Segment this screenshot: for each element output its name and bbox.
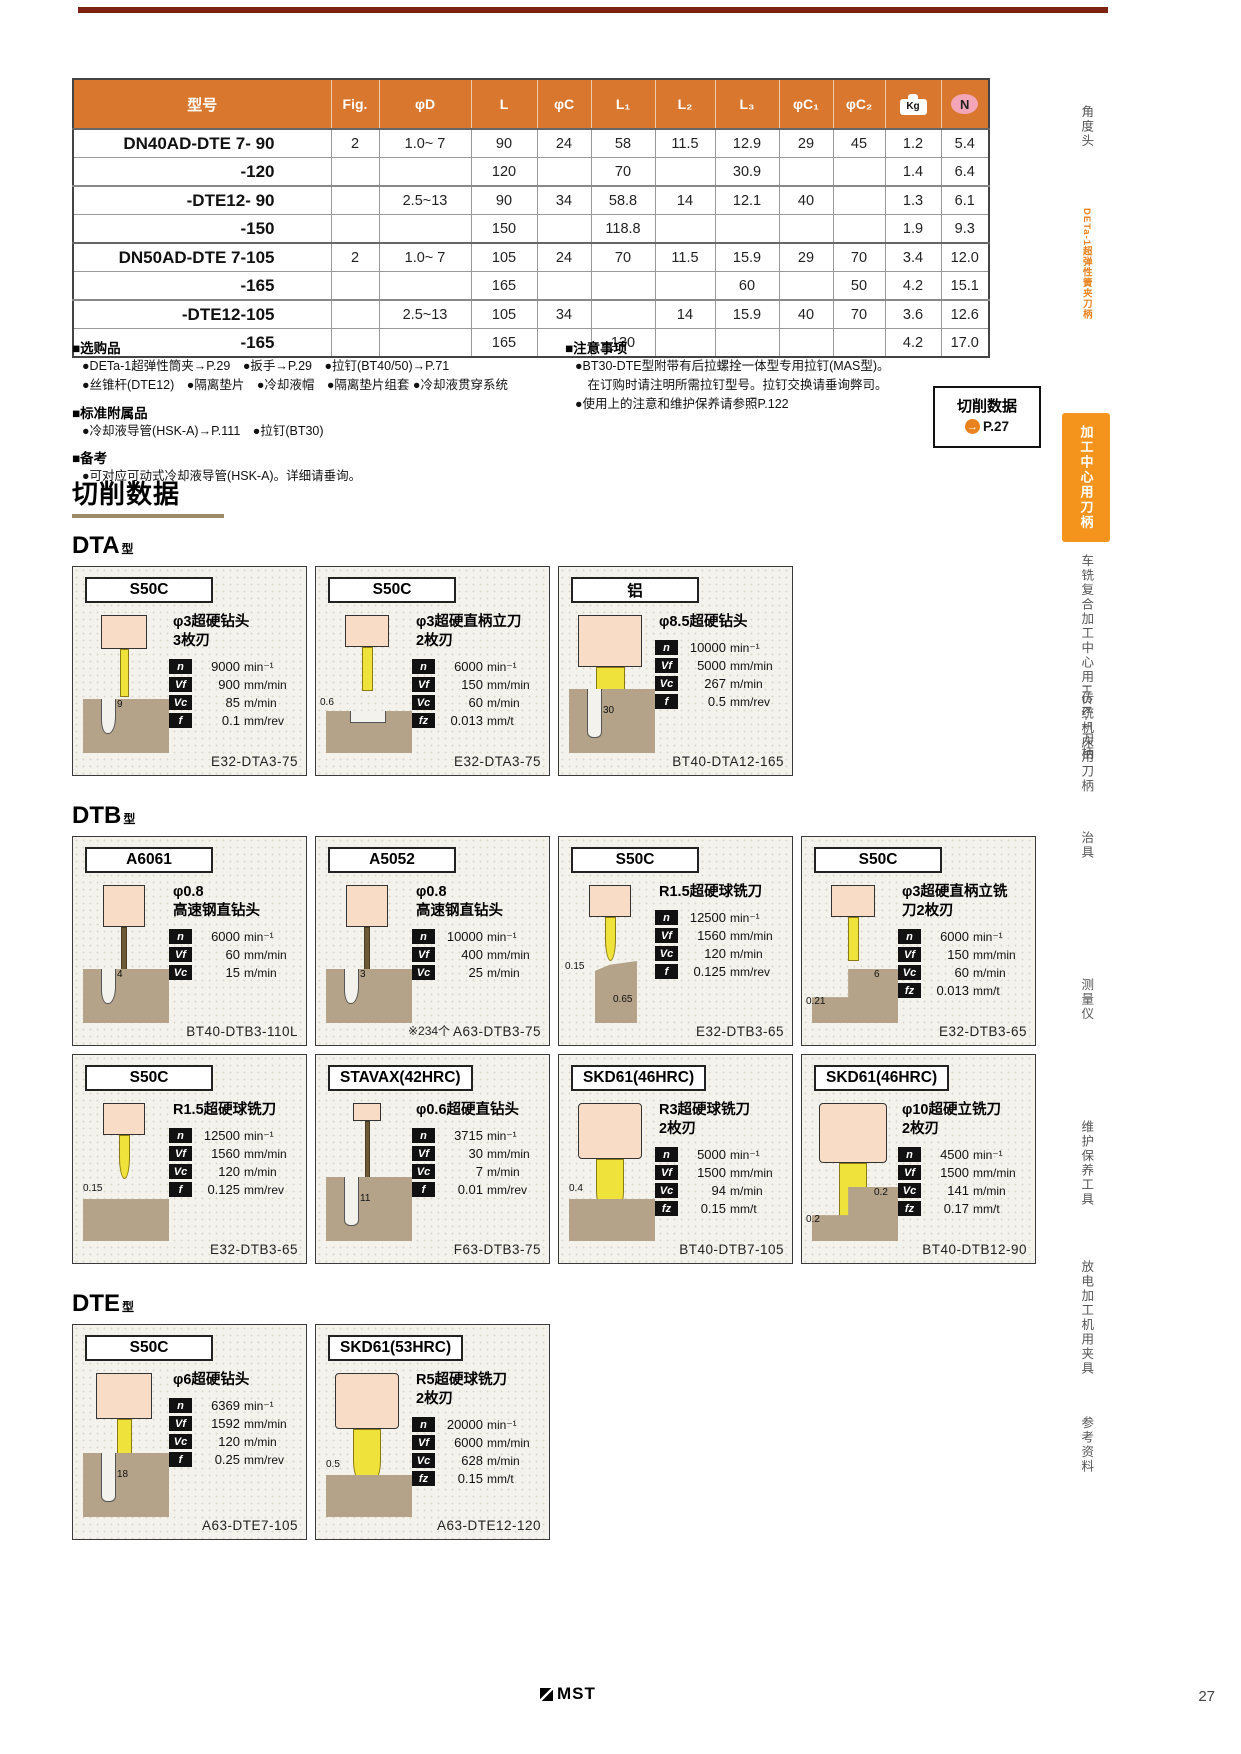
cut-diagram: 18 [79, 1447, 185, 1517]
spec-row: -DTE12- 90 2.5~13903458.81412.1401.36.1 [73, 186, 989, 215]
hole-shape [350, 711, 386, 723]
cutting-data-card: S50C φ6超硬钻头 n 6369 min⁻¹ Vf 1592 mm/min … [72, 1324, 307, 1540]
sidebar-tab[interactable]: 参考资料 [1062, 1416, 1110, 1474]
tool-description: φ0.8高速钢直钻头 [416, 883, 546, 921]
param-unit: min⁻¹ [244, 660, 274, 674]
cut-diagram: 0.15 [79, 1171, 185, 1241]
material-label: STAVAX(42HRC) [328, 1065, 473, 1091]
param-unit: mm/t [973, 984, 1000, 998]
sidebar-tab[interactable]: 维护保养工具 [1062, 1120, 1110, 1207]
param-value: 60 [196, 947, 240, 962]
cutting-data-reference[interactable]: 切削数据 → P.27 [933, 386, 1041, 448]
spec-cell [779, 215, 833, 244]
param-row: Vf 1500 mm/min [898, 1165, 1034, 1180]
param-unit: mm/min [487, 948, 530, 962]
spec-cell: 15.1 [941, 272, 989, 301]
collet-holder-shape [578, 615, 642, 667]
spec-cell: 58.8 [591, 186, 655, 215]
param-unit: m/min [244, 1435, 277, 1449]
param-unit: min⁻¹ [487, 1129, 517, 1143]
collet-holder-shape [101, 615, 147, 649]
param-value: 267 [682, 676, 726, 691]
param-unit: min⁻¹ [244, 1129, 274, 1143]
spec-cell [331, 158, 379, 187]
spec-cell: 12.6 [941, 300, 989, 329]
dimension-label: 3 [360, 969, 366, 980]
cutting-params: n 6369 min⁻¹ Vf 1592 mm/min Vc 120 m/min… [169, 1398, 305, 1470]
dimension-label: 6 [874, 969, 880, 980]
param-row: n 10000 min⁻¹ [655, 640, 791, 655]
param-value: 0.1 [196, 713, 240, 728]
spec-cell: 24 [537, 129, 591, 158]
param-value: 400 [439, 947, 483, 962]
note-title: ■标准附属品 [72, 402, 560, 422]
param-unit: mm/min [730, 929, 773, 943]
spec-cell [537, 215, 591, 244]
param-unit: mm/min [244, 1147, 287, 1161]
param-unit: m/min [244, 966, 277, 980]
cutting-params: n 10000 min⁻¹ Vf 400 mm/min Vc 25 m/min [412, 929, 548, 983]
spec-cell [331, 215, 379, 244]
cutting-data-card: A5052 φ0.8高速钢直钻头 n 10000 min⁻¹ Vf 400 mm… [315, 836, 550, 1046]
collet-holder-shape [103, 1103, 145, 1135]
mst-logo-icon [540, 1688, 553, 1701]
tool-illustration [91, 1103, 157, 1179]
spec-cell: 34 [537, 300, 591, 329]
param-unit: min⁻¹ [487, 1418, 517, 1432]
arrow-icon: → [965, 419, 980, 434]
cutting-params: n 4500 min⁻¹ Vf 1500 mm/min Vc 141 m/min… [898, 1147, 1034, 1219]
param-symbol-chip: n [412, 659, 435, 674]
param-unit: mm/min [487, 1436, 530, 1450]
cutting-params: n 20000 min⁻¹ Vf 6000 mm/min Vc 628 m/mi… [412, 1417, 548, 1489]
cutting-data-card: STAVAX(42HRC) φ0.6超硬直钻头 n 3715 min⁻¹ Vf … [315, 1054, 550, 1264]
param-value: 1592 [196, 1416, 240, 1431]
dimension-label: 0.5 [326, 1459, 340, 1470]
param-row: fz 0.15 mm/t [412, 1471, 548, 1486]
page-number: 27 [1198, 1688, 1215, 1705]
spec-cell: 29 [779, 243, 833, 272]
collet-holder-shape [346, 885, 388, 927]
spec-cell: 12.9 [715, 129, 779, 158]
spec-cell: 165 [471, 272, 537, 301]
param-value: 120 [196, 1434, 240, 1449]
param-row: Vf 400 mm/min [412, 947, 548, 962]
param-row: Vf 5000 mm/min [655, 658, 791, 673]
param-value: 15 [196, 965, 240, 980]
param-row: n 12500 min⁻¹ [655, 910, 791, 925]
sidebar-tab-label: 维护保养工具 [1080, 1120, 1093, 1207]
param-row: Vc 267 m/min [655, 676, 791, 691]
workpiece-shape [83, 969, 169, 1023]
param-row: f 0.5 mm/rev [655, 694, 791, 709]
param-value: 10000 [682, 640, 726, 655]
param-unit: mm/rev [730, 695, 770, 709]
param-value: 120 [196, 1164, 240, 1179]
tool-description: φ6超硬钻头 [173, 1371, 303, 1390]
note-line: ●BT30-DTE型附带有后拉螺拴一体型专用拉钉(MAS型)。 [565, 357, 1015, 376]
spec-cell [591, 300, 655, 329]
param-row: f 0.25 mm/rev [169, 1452, 305, 1467]
dimension-label: 30 [603, 705, 614, 716]
param-row: n 4500 min⁻¹ [898, 1147, 1034, 1162]
param-unit: min⁻¹ [487, 930, 517, 944]
cut-diagram: 6 0.21 [808, 953, 914, 1023]
param-unit: m/min [730, 947, 763, 961]
spec-cell: 5.4 [941, 129, 989, 158]
group-suffix: 型 [122, 542, 134, 556]
param-unit: mm/min [973, 948, 1016, 962]
dimension-label: 9 [117, 699, 123, 710]
param-value: 12500 [196, 1128, 240, 1143]
column-header-l1: L₁ [591, 79, 655, 129]
param-row: f 0.1 mm/rev [169, 713, 305, 728]
material-label: SKD61(46HRC) [571, 1065, 706, 1091]
spec-cell: 6.1 [941, 186, 989, 215]
param-unit: min⁻¹ [973, 1148, 1003, 1162]
holder-model-number: A63-DTB3-75 [453, 1024, 541, 1039]
param-row: fz 0.15 mm/t [655, 1201, 791, 1216]
workpiece-shape [326, 1475, 412, 1517]
spec-cell: 1.4 [885, 158, 941, 187]
param-row: Vc 60 m/min [412, 695, 548, 710]
tool-illustration [820, 885, 886, 961]
spec-cell: 40 [779, 186, 833, 215]
tool-description: φ0.8高速钢直钻头 [173, 883, 303, 921]
param-unit: mm/min [487, 678, 530, 692]
spec-cell: 120 [471, 158, 537, 187]
cutting-group: DTA型 S50C φ3超硬钻头3枚刃 n 9000 min⁻¹ Vf 900 … [72, 532, 1052, 776]
param-symbol-chip: n [412, 1417, 435, 1432]
spec-cell: 2 [331, 243, 379, 272]
spec-row: -120 1207030.91.46.4 [73, 158, 989, 187]
param-value: 5000 [682, 658, 726, 673]
cut-diagram: 0.6 [322, 683, 428, 753]
model-cell: -DTE12-105 [73, 300, 331, 329]
spec-cell: 29 [779, 129, 833, 158]
section-title-underline [72, 514, 224, 518]
workpiece-shape [326, 711, 412, 753]
column-header-l3: L₃ [715, 79, 779, 129]
dimension-label: 0.15 [565, 961, 584, 972]
cut-diagram: 0.15 0.65 [565, 953, 671, 1023]
weight-icon [908, 94, 918, 99]
param-row: Vc 15 m/min [169, 965, 305, 980]
cutting-data-card: SKD61(53HRC) R5超硬球铣刀2枚刃 n 20000 min⁻¹ Vf… [315, 1324, 550, 1540]
param-value: 94 [682, 1183, 726, 1198]
cutting-params: n 10000 min⁻¹ Vf 5000 mm/min Vc 267 m/mi… [655, 640, 791, 712]
param-row: n 12500 min⁻¹ [169, 1128, 305, 1143]
group-suffix: 型 [123, 812, 135, 826]
cut-diagram: 9 [79, 683, 185, 753]
param-symbol-chip: Vf [655, 928, 678, 943]
param-value: 9000 [196, 659, 240, 674]
param-symbol-chip: n [655, 910, 678, 925]
model-cell: -165 [73, 272, 331, 301]
spec-cell: 70 [833, 243, 885, 272]
param-symbol-chip: n [412, 1128, 435, 1143]
holder-model-number: E32-DTA3-75 [454, 754, 541, 769]
column-header-fig: Fig. [331, 79, 379, 129]
sidebar-tab-label: 治具 [1080, 831, 1093, 860]
cutting-params: n 6000 min⁻¹ Vf 150 mm/min Vc 60 m/min f… [898, 929, 1034, 1001]
sidebar-tab[interactable]: 放电加工机用夹具 [1062, 1260, 1110, 1376]
cutting-data-card: S50C φ3超硬直柄立刀2枚刃 n 6000 min⁻¹ Vf 150 mm/… [315, 566, 550, 776]
param-value: 25 [439, 965, 483, 980]
note-block: ■选购品 ●DETa-1超弹性筒夹→P.29 ●扳手→P.29 ●拉钉(BT40… [72, 337, 560, 395]
spec-cell: 11.5 [655, 243, 715, 272]
sidebar-tab-label: 参考资料 [1080, 1416, 1093, 1474]
spec-cell [655, 272, 715, 301]
param-unit: min⁻¹ [973, 930, 1003, 944]
param-unit: min⁻¹ [244, 1399, 274, 1413]
spec-cell: 12.1 [715, 186, 779, 215]
param-value: 6369 [196, 1398, 240, 1413]
spec-cell [331, 272, 379, 301]
param-row: Vc 60 m/min [898, 965, 1034, 980]
dimension-label: 11 [360, 1193, 370, 1204]
param-row: Vf 60 mm/min [169, 947, 305, 962]
spec-cell: 15.9 [715, 243, 779, 272]
cards-row: S50C R1.5超硬球铣刀 n 12500 min⁻¹ Vf 1560 mm/… [72, 1054, 1052, 1264]
param-unit: min⁻¹ [730, 1148, 760, 1162]
spec-cell [833, 186, 885, 215]
dimension-label: 0.6 [320, 697, 334, 708]
param-value: 5000 [682, 1147, 726, 1162]
workpiece-shape [83, 1199, 169, 1241]
tool-description: φ3超硬直柄立刀2枚刃 [416, 613, 546, 651]
param-value: 0.013 [439, 713, 483, 728]
param-row: fz 0.013 mm/t [412, 713, 548, 728]
top-rule [78, 7, 1108, 13]
param-unit: m/min [487, 966, 520, 980]
param-value: 4500 [925, 1147, 969, 1162]
spec-cell: 1.9 [885, 215, 941, 244]
model-cell: -DTE12- 90 [73, 186, 331, 215]
spec-cell: 30.9 [715, 158, 779, 187]
param-value: 1500 [682, 1165, 726, 1180]
spec-cell: 2 [331, 129, 379, 158]
collet-holder-shape [589, 885, 631, 917]
param-unit: mm/t [487, 1472, 514, 1486]
param-value: 20000 [439, 1417, 483, 1432]
param-row: Vc 120 m/min [169, 1434, 305, 1449]
param-value: 60 [439, 695, 483, 710]
group-title: DTE型 [72, 1290, 1052, 1318]
param-value: 1560 [682, 928, 726, 943]
spec-table: 型号 Fig. φD L φC L₁ L₂ L₃ φC₁ φC₂ Kg N DN [72, 78, 988, 358]
cutting-data-card: S50C R1.5超硬球铣刀 n 12500 min⁻¹ Vf 1560 mm/… [558, 836, 793, 1046]
param-value: 12500 [682, 910, 726, 925]
spec-cell [331, 300, 379, 329]
spec-cell: 70 [591, 158, 655, 187]
param-row: fz 0.013 mm/t [898, 983, 1034, 998]
note-lines: ●冷却液导管(HSK-A)→P.111 ●拉钉(BT30) [72, 422, 560, 441]
param-row: n 6369 min⁻¹ [169, 1398, 305, 1413]
spec-cell: 40 [779, 300, 833, 329]
param-unit: m/min [487, 696, 520, 710]
param-row: n 3715 min⁻¹ [412, 1128, 548, 1143]
note-title: ■选购品 [72, 337, 560, 357]
param-unit: mm/min [730, 659, 773, 673]
param-symbol-chip: n [169, 1128, 192, 1143]
sidebar-tab[interactable]: 测量仪 [1062, 978, 1110, 1022]
cards-row: S50C φ6超硬钻头 n 6369 min⁻¹ Vf 1592 mm/min … [72, 1324, 1052, 1540]
param-value: 0.15 [439, 1471, 483, 1486]
holder-model-number: BT40-DTA12-165 [672, 754, 784, 769]
param-value: 85 [196, 695, 240, 710]
model-cell: DN40AD-DTE 7- 90 [73, 129, 331, 158]
sidebar-tab-label: DETa-1超弹性簧夹刀柄 [1081, 208, 1091, 320]
spec-cell [779, 158, 833, 187]
cutting-data-section: 切削数据 DTA型 S50C φ3超硬钻头3枚刃 n 9000 min⁻¹ Vf… [72, 474, 1052, 1566]
spec-cell [537, 272, 591, 301]
holder-model-number: A63-DTE12-120 [437, 1518, 541, 1533]
spec-cell [591, 272, 655, 301]
param-row: Vf 900 mm/min [169, 677, 305, 692]
dimension-label: 0.4 [569, 1183, 583, 1194]
param-row: Vc 628 m/min [412, 1453, 548, 1468]
workpiece-shape [83, 699, 169, 753]
param-unit: mm/min [244, 1417, 287, 1431]
collet-holder-shape [353, 1103, 381, 1121]
param-value: 10000 [439, 929, 483, 944]
hole-shape [101, 1453, 116, 1502]
param-row: Vc 120 m/min [169, 1164, 305, 1179]
sidebar-tab[interactable]: 传统机床用刀柄 [1062, 692, 1110, 794]
spec-cell: 105 [471, 300, 537, 329]
sidebar-tab[interactable]: 角度头 [1062, 105, 1110, 149]
tool-illustration [577, 885, 643, 961]
note-line: ●丝锥杆(DTE12) ●隔离垫片 ●冷却液帽 ●隔离垫片组套 ●冷却液贯穿系统 [72, 376, 560, 395]
sidebar-tab[interactable]: DETa-1超弹性簧夹刀柄 [1062, 208, 1110, 320]
hole-shape [101, 969, 116, 1004]
model-cell: DN50AD-DTE 7-105 [73, 243, 331, 272]
dimension-label: 0.21 [806, 996, 825, 1007]
spec-cell: 90 [471, 129, 537, 158]
footer-logo: MST [540, 1684, 596, 1704]
holder-model-number: E32-DTA3-75 [211, 754, 298, 769]
param-symbol-chip: n [412, 929, 435, 944]
param-unit: mm/rev [244, 714, 284, 728]
column-header-model: 型号 [73, 79, 331, 129]
sidebar-tab[interactable]: 加工中心用刀柄 [1062, 413, 1110, 542]
cutting-groups: DTA型 S50C φ3超硬钻头3枚刃 n 9000 min⁻¹ Vf 900 … [72, 532, 1052, 1540]
note-title: ■备考 [72, 447, 560, 467]
param-unit: m/min [973, 966, 1006, 980]
sidebar-tab[interactable]: 治具 [1062, 831, 1110, 860]
param-unit: min⁻¹ [244, 930, 274, 944]
dimension-label: 0.15 [83, 1183, 102, 1194]
param-row: f 0.125 mm/rev [655, 964, 791, 979]
param-row: Vf 1560 mm/min [169, 1146, 305, 1161]
param-value: 0.013 [925, 983, 969, 998]
sidebar-tab-label: 放电加工机用夹具 [1080, 1260, 1093, 1376]
cut-diagram: 3 [322, 953, 428, 1023]
cards-row: A6061 φ0.8高速钢直钻头 n 6000 min⁻¹ Vf 60 mm/m… [72, 836, 1052, 1046]
param-unit: mm/min [244, 948, 287, 962]
note-lines: ●DETa-1超弹性筒夹→P.29 ●扳手→P.29 ●拉钉(BT40/50)→… [72, 357, 560, 395]
collet-holder-shape [103, 885, 145, 927]
param-symbol-chip: n [898, 1147, 921, 1162]
spec-cell: 1.3 [885, 186, 941, 215]
holder-model-number: BT40-DTB7-105 [679, 1242, 784, 1257]
cutting-params: n 6000 min⁻¹ Vf 150 mm/min Vc 60 m/min f… [412, 659, 548, 731]
spec-cell: 9.3 [941, 215, 989, 244]
column-header-weight: Kg [885, 79, 941, 129]
param-symbol-chip: n [169, 1398, 192, 1413]
param-symbol-chip: n [898, 929, 921, 944]
param-row: Vc 7 m/min [412, 1164, 548, 1179]
param-unit: m/min [730, 677, 763, 691]
param-row: Vf 1592 mm/min [169, 1416, 305, 1431]
spec-cell [779, 272, 833, 301]
group-name: DTB [72, 802, 121, 829]
column-header-phic1: φC₁ [779, 79, 833, 129]
material-label: S50C [814, 847, 942, 873]
spec-cell: 14 [655, 186, 715, 215]
holder-model-number: BT40-DTB12-90 [922, 1242, 1027, 1257]
param-unit: mm/rev [244, 1183, 284, 1197]
param-value: 0.5 [682, 694, 726, 709]
cutting-params: n 5000 min⁻¹ Vf 1500 mm/min Vc 94 m/min … [655, 1147, 791, 1219]
cut-diagram: 0.2 0.2 [808, 1171, 914, 1241]
holder-model-number: A63-DTE7-105 [202, 1518, 298, 1533]
param-unit: m/min [487, 1165, 520, 1179]
tool-description: φ8.5超硬钻头 [659, 613, 789, 632]
spec-cell [715, 215, 779, 244]
workpiece-shape [326, 1177, 412, 1241]
cutting-data-reference-title: 切削数据 [935, 395, 1039, 416]
param-row: f 0.125 mm/rev [169, 1182, 305, 1197]
param-value: 30 [439, 1146, 483, 1161]
collet-holder-shape [345, 615, 389, 647]
column-header-l: L [471, 79, 537, 129]
model-cell: -120 [73, 158, 331, 187]
spec-cell: 1.0~ 7 [379, 243, 471, 272]
tool-description: R1.5超硬球铣刀 [173, 1101, 303, 1120]
holder-model-number: E32-DTB3-65 [939, 1024, 1027, 1039]
spec-cell: 12.0 [941, 243, 989, 272]
param-value: 0.125 [682, 964, 726, 979]
collet-holder-shape [96, 1373, 152, 1419]
tool-description: R1.5超硬球铣刀 [659, 883, 789, 902]
param-unit: m/min [244, 696, 277, 710]
spec-cell: 1.0~ 7 [379, 129, 471, 158]
param-symbol-chip: Vf [412, 1146, 435, 1161]
spec-cell: 34 [537, 186, 591, 215]
param-unit: min⁻¹ [487, 660, 517, 674]
param-symbol-chip: Vf [169, 1146, 192, 1161]
hole-shape [587, 689, 602, 738]
param-row: fz 0.17 mm/t [898, 1201, 1034, 1216]
spec-cell [331, 186, 379, 215]
note-title: ■注意事项 [565, 337, 1015, 357]
param-unit: min⁻¹ [730, 911, 760, 925]
workpiece-shape [83, 1453, 169, 1517]
cutting-data-reference-page: P.27 [983, 419, 1009, 434]
n-badge-icon: N [951, 94, 978, 114]
spec-cell: 150 [471, 215, 537, 244]
param-unit: mm/t [730, 1202, 757, 1216]
spec-cell [537, 158, 591, 187]
workpiece-shape [326, 969, 412, 1023]
spec-cell: 118.8 [591, 215, 655, 244]
cutting-data-card: SKD61(46HRC) R3超硬球铣刀2枚刃 n 5000 min⁻¹ Vf … [558, 1054, 793, 1264]
material-label: SKD61(53HRC) [328, 1335, 463, 1361]
param-row: Vf 30 mm/min [412, 1146, 548, 1161]
cutting-params: n 6000 min⁻¹ Vf 60 mm/min Vc 15 m/min [169, 929, 305, 983]
